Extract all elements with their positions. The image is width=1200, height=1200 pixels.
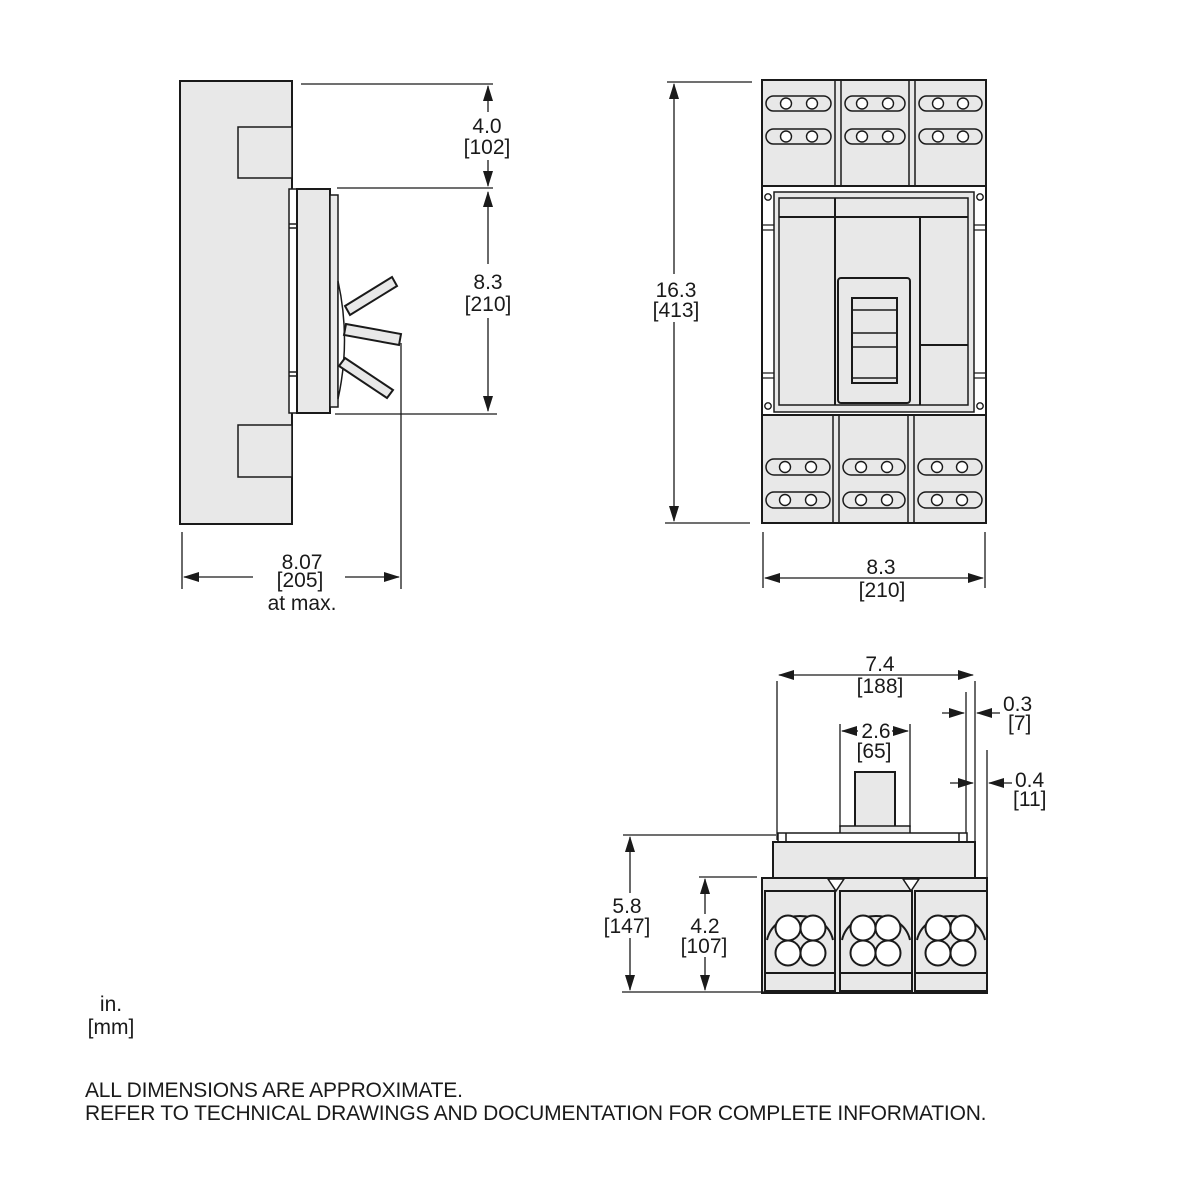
dim-step-offset: 0.4 [11] [950,769,1046,811]
breaker-body-side [297,189,330,413]
dim-value-in: 8.3 [473,271,502,294]
terminal-slot [766,459,830,475]
terminal-slot [845,129,905,144]
upper-case [773,842,975,878]
terminal-slot [766,129,831,144]
dim-note: at max. [268,592,337,615]
dim-value-mm: [147] [604,915,651,938]
handle-lever-middle [344,324,401,345]
dim-value-mm: [11] [1013,788,1046,811]
terminal-slot [766,492,830,508]
footer-line-2: REFER TO TECHNICAL DRAWINGS AND DOCUMENT… [85,1102,986,1125]
terminal-slot [766,96,831,111]
dim-value-in: 4.0 [472,115,501,138]
dim-value-mm: [65] [856,740,891,763]
panel-notch-bottom [238,425,292,477]
units-millimeters: [mm] [88,1016,135,1039]
terminal-slot [919,96,982,111]
terminal-slot [918,492,982,508]
terminal-slot [843,459,905,475]
dim-value-in: 8.3 [866,556,895,579]
dim-value-mm: [7] [1008,712,1031,735]
dim-value-mm: [413] [653,299,700,322]
dim-value-mm: [107] [681,935,728,958]
dim-value-mm: [210] [465,293,512,316]
dim-front-width: 8.3 [210] [763,532,985,602]
terminal-slot [918,459,982,475]
handle-lever-down [339,358,393,398]
dim-value-mm: [210] [859,579,906,602]
dim-front-height: 16.3 [413] [653,82,752,523]
side-view: 4.0 [102] 8.3 [210] 8.07 [205] at max. [180,81,511,615]
terminal-slot [919,129,982,144]
dim-value-mm: [205] [277,569,324,592]
dim-side-top-offset: 4.0 [102] [301,84,510,188]
dim-value-mm: [102] [464,136,511,159]
front-plate-edge [330,195,338,407]
handle-lever-up [345,277,397,315]
handle-arc-face [338,281,345,399]
handle-end [855,772,895,827]
units-inches: in. [100,993,122,1016]
breaker-dimension-drawing: 4.0 [102] 8.3 [210] 8.07 [205] at max. [0,0,1200,1200]
dim-bottom-height: 5.8 [147] [604,835,776,992]
front-view: 16.3 [413] 8.3 [210] [653,80,986,602]
footer-line-1: ALL DIMENSIONS ARE APPROXIMATE. [85,1079,463,1102]
panel-notch-top [238,127,292,178]
dim-value-mm: [188] [857,675,904,698]
technical-drawing-page: 4.0 [102] 8.3 [210] 8.07 [205] at max. [0,0,1200,1200]
mount-strip [289,189,297,413]
terminal-slot [843,492,905,508]
dim-value-in: 7.4 [865,653,895,676]
terminal-slot [845,96,905,111]
units-legend: in. [mm] [88,993,135,1039]
bottom-view: 7.4 [188] 2.6 [65] 0.3 [7] 0.4 [11] [604,653,1047,993]
footer-note: ALL DIMENSIONS ARE APPROXIMATE. REFER TO… [85,1079,986,1125]
dim-terminal-height: 4.2 [107] [681,877,757,990]
top-cover-plate [778,833,967,842]
